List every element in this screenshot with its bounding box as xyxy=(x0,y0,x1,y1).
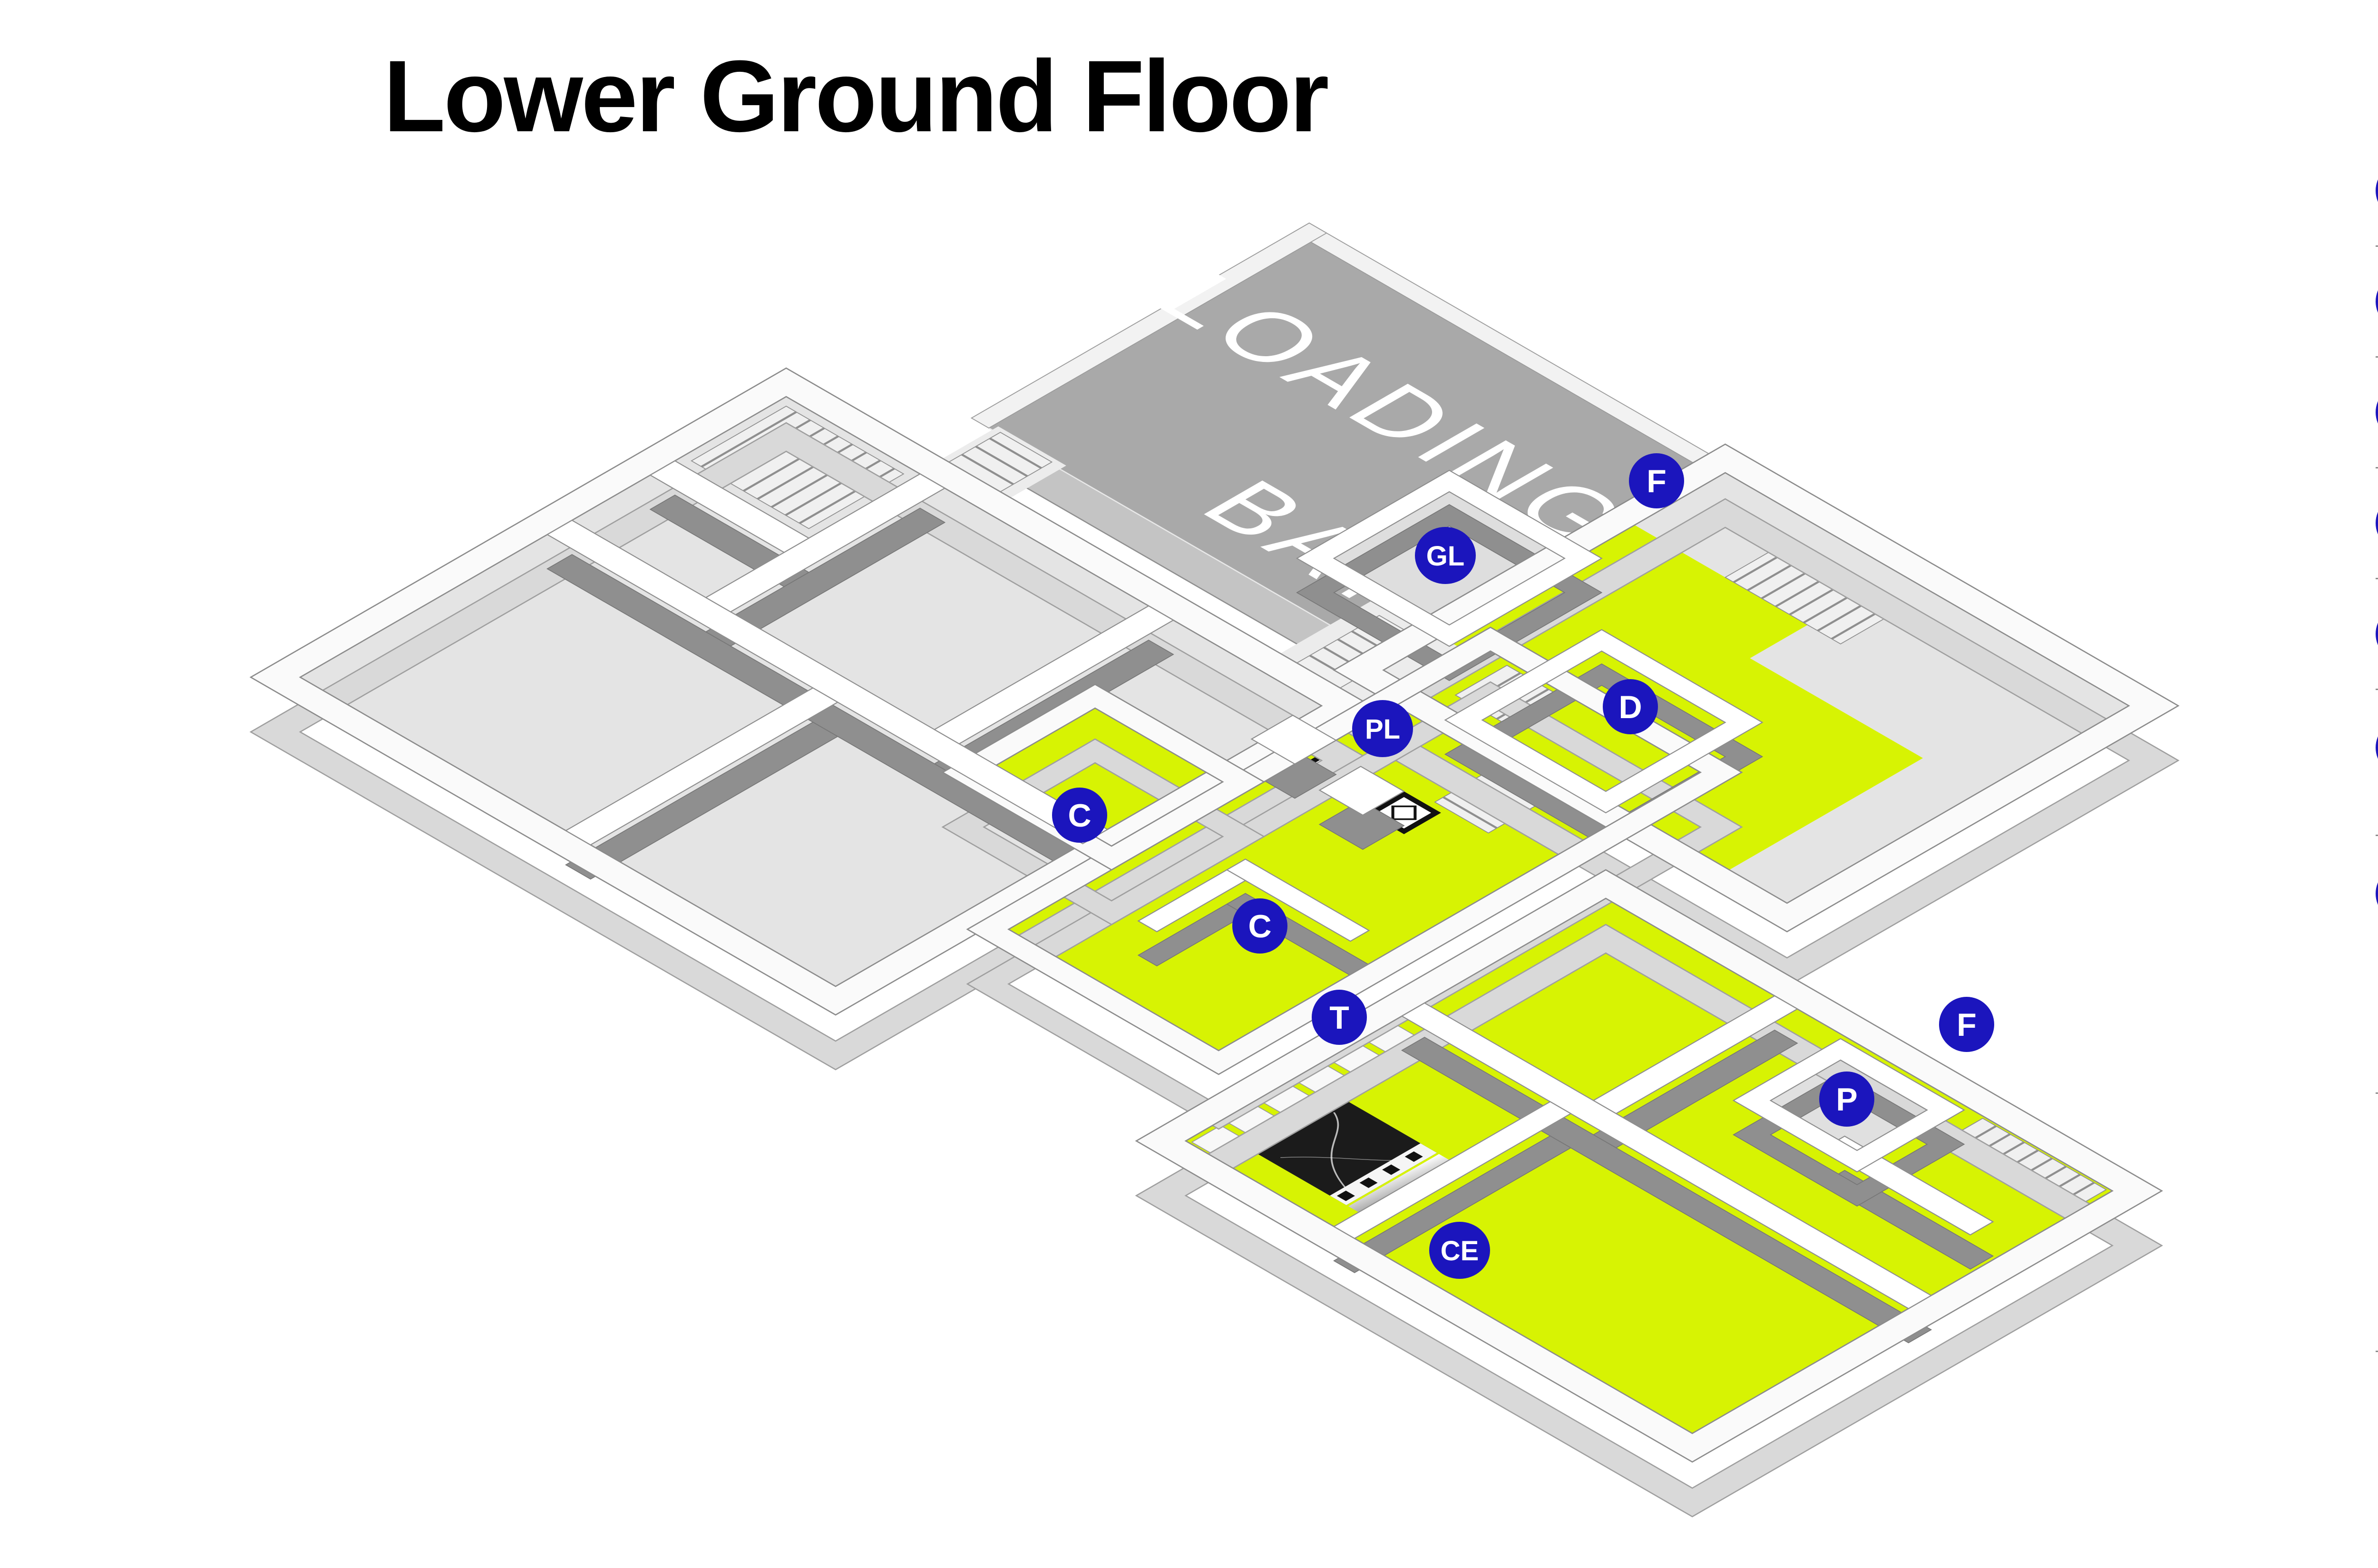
legend-item-loading-bay: Loading bay The parking bay is located a… xyxy=(2376,1094,2378,1352)
plan-badge-passenger-lift: PL xyxy=(1352,700,1413,757)
legend: T Toliets D Disabled toilet F Fire exit … xyxy=(2376,136,2378,1352)
fire-exit-badge-icon: F xyxy=(2376,385,2378,440)
goods-lift-badge-icon: GL xyxy=(2376,866,2378,921)
floor-plan: LOADING BAY xyxy=(0,0,2378,1568)
page-title: Lower Ground Floor xyxy=(383,38,1327,155)
legend-item-fire-exit: F Fire exit xyxy=(2376,358,2378,468)
plan-badge-disabled-toilet: D xyxy=(1603,679,1658,734)
svg-text:C: C xyxy=(1248,908,1271,945)
svg-text:D: D xyxy=(1618,689,1642,725)
legend-item-passenger-lift: PL Passenger lift Lifts are 96cm (W) x 1… xyxy=(2376,690,2378,836)
power-socket-badge-icon: P xyxy=(2376,496,2378,551)
svg-text:PL: PL xyxy=(1365,714,1400,745)
passenger-lift-badge-icon: PL xyxy=(2376,720,2378,775)
plan-badge-goods-lift: GL xyxy=(1415,527,1476,584)
svg-text:C: C xyxy=(1068,798,1091,834)
legend-item-power-socket: P Power Socket xyxy=(2376,468,2378,579)
legend-item-disabled-toilet: D Disabled toilet xyxy=(2376,247,2378,358)
svg-text:T: T xyxy=(1329,1000,1349,1036)
legend-item-cloakroom: C Cloakroom xyxy=(2376,579,2378,690)
svg-text:F: F xyxy=(1647,463,1667,499)
svg-text:P: P xyxy=(1836,1081,1857,1118)
legend-item-toilets: T Toliets xyxy=(2376,136,2378,247)
disabled-toilet-badge-icon: D xyxy=(2376,274,2378,329)
svg-text:CE: CE xyxy=(1441,1236,1479,1266)
plan-badge-cafe: CE xyxy=(1429,1222,1490,1279)
svg-text:F: F xyxy=(1957,1007,1977,1043)
plan-badge-fire-exit-north: F xyxy=(1629,453,1684,508)
toilets-badge-icon: T xyxy=(2376,163,2378,218)
page: { "title": "Lower Ground Floor", "colors… xyxy=(0,0,2378,1568)
plan-badge-toilets: T xyxy=(1312,990,1367,1045)
plan-badge-cloakroom-2: C xyxy=(1232,898,1287,954)
plan-badge-power-socket: P xyxy=(1819,1071,1874,1127)
plan-badge-cloakroom-1: C xyxy=(1052,788,1107,843)
svg-text:GL: GL xyxy=(1426,541,1465,572)
cloakroom-badge-icon: C xyxy=(2376,606,2378,662)
plan-badge-fire-exit-east: F xyxy=(1939,997,1994,1052)
legend-item-goods-lift: GL Goods lift The maximum loading of the… xyxy=(2376,836,2378,1094)
